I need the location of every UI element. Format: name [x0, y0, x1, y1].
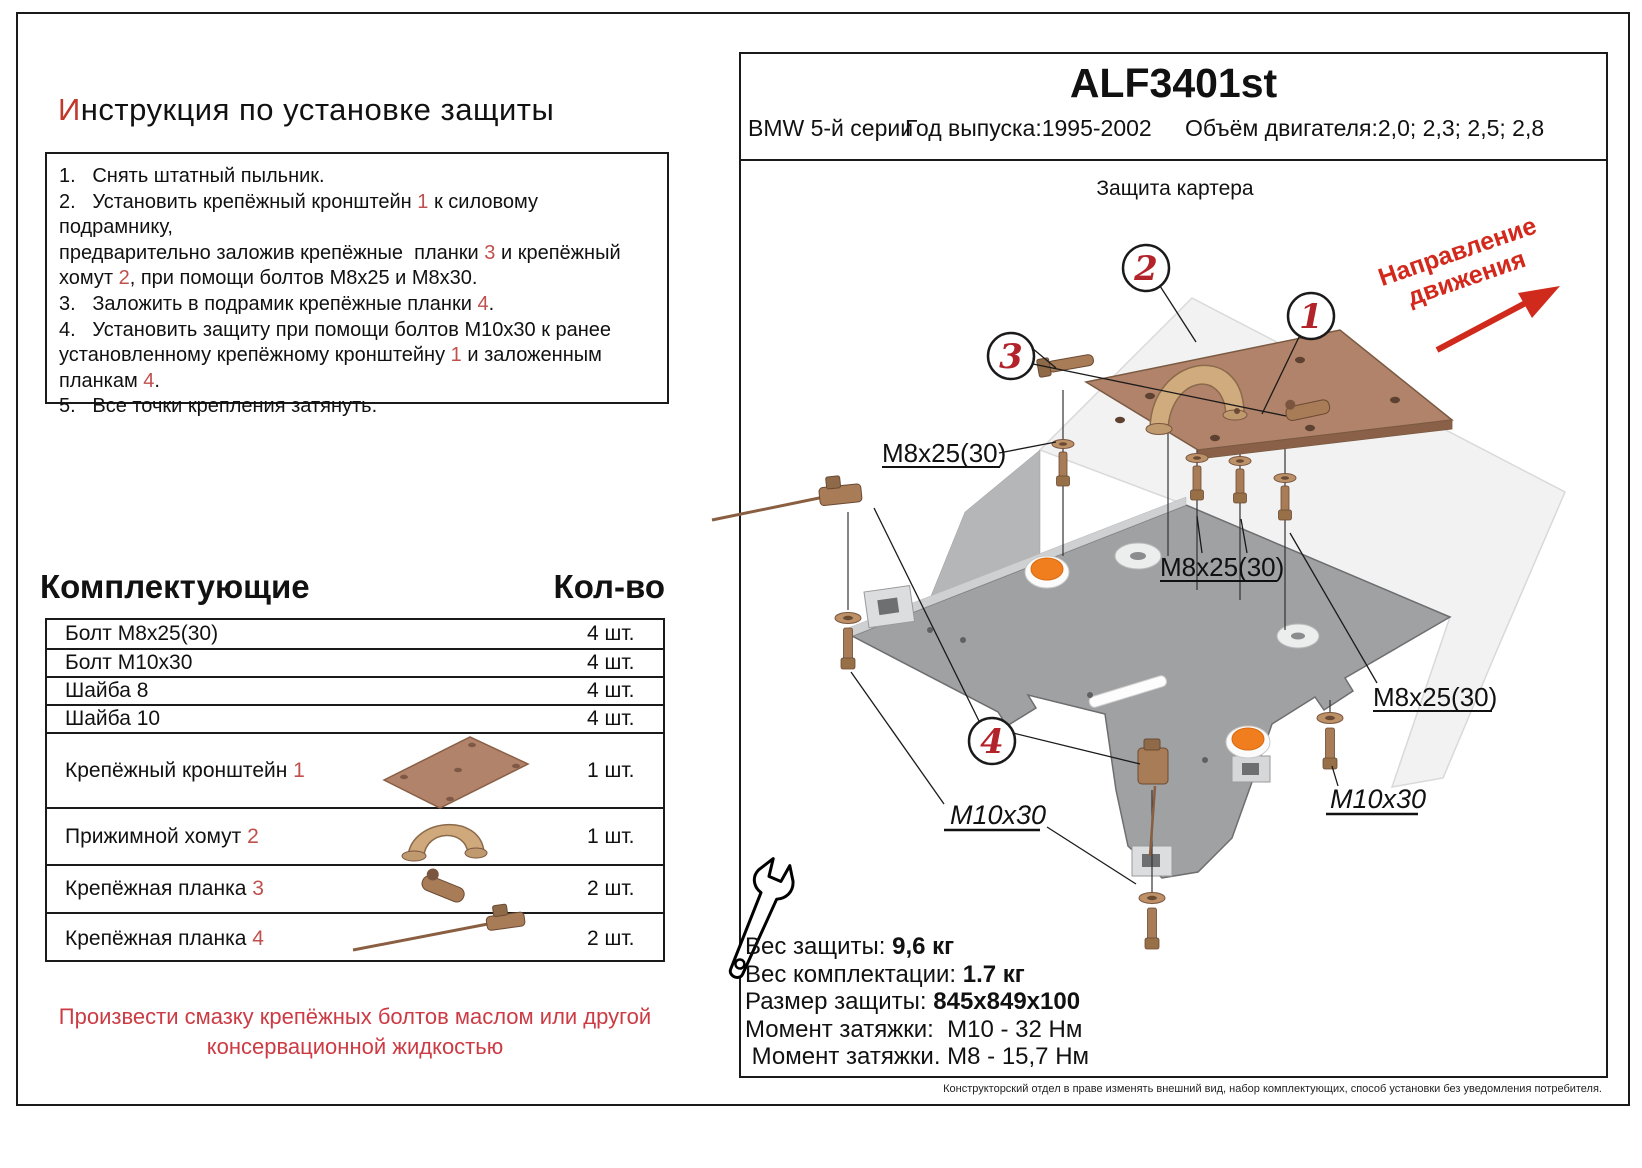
- right-edge-bracket: [1232, 756, 1270, 782]
- bolt-label-m8-3: M8x25(30): [1373, 682, 1497, 712]
- instruction-line: 5. Все точки крепления затянуть.: [59, 394, 655, 420]
- instruction-line: 3. Заложить в подрамик крепёжные планки …: [59, 292, 655, 318]
- bolt-label-m10-right: M10x30: [1326, 784, 1426, 814]
- callout-3: 3: [988, 333, 1034, 379]
- component-name: Прижимной хомут 2: [47, 825, 587, 849]
- spec-info-line: Вес защиты: 9,6 кг: [745, 933, 1089, 961]
- components-table: Болт М8х25(30)4 шт.Болт М10х304 шт.Шайба…: [45, 618, 665, 962]
- spec-info-line: Вес комплектации: 1.7 кг: [745, 961, 1089, 989]
- svg-text:M10x30: M10x30: [950, 800, 1046, 830]
- svg-text:4: 4: [980, 722, 1004, 762]
- m10-bolt-assembly: [1317, 713, 1343, 770]
- component-row: Прижимной хомут 21 шт.: [47, 807, 663, 864]
- svg-text:1: 1: [1299, 297, 1323, 337]
- disclaimer: Конструкторский отдел в праве изменять в…: [740, 1083, 1602, 1095]
- rubber-damper: [1226, 726, 1270, 758]
- component-row: Болт М8х25(30)4 шт.: [47, 620, 663, 648]
- m10-bolt-assembly: [835, 613, 861, 670]
- callout-2: 2: [1123, 245, 1169, 291]
- component-qty: 4 шт.: [587, 679, 663, 703]
- svg-text:M10x30: M10x30: [1330, 784, 1426, 814]
- instruction-line: 4. Установить защиту при помощи болтов М…: [59, 318, 655, 344]
- component-name: Шайба 10: [47, 707, 587, 731]
- part-code: ALF3401st: [739, 60, 1608, 107]
- spec-info-line: Момент затяжки: М10 - 32 Нм: [745, 1016, 1089, 1044]
- component-name: Крепёжная планка 4: [47, 927, 587, 951]
- installation-steps-box: 1. Снять штатный пыльник.2. Установить к…: [45, 152, 669, 404]
- instruction-line: установленному крепёжному кронштейну 1 и…: [59, 343, 655, 369]
- svg-text:М8х25(30): М8х25(30): [882, 438, 1006, 468]
- screw-dot: [927, 627, 933, 633]
- component-qty: 1 шт.: [587, 759, 663, 783]
- component-name: Шайба 8: [47, 679, 587, 703]
- component-name: Болт М10х30: [47, 651, 587, 675]
- spec-info-line: Момент затяжки. М8 - 15,7 Нм: [745, 1043, 1089, 1071]
- screw-dot: [960, 637, 966, 643]
- instruction-line: планкам 4.: [59, 369, 655, 395]
- component-qty: 2 шт.: [587, 927, 663, 951]
- lubrication-note-line1: Произвести смазку крепёжных болтов масло…: [45, 1002, 665, 1032]
- component-qty: 4 шт.: [587, 622, 663, 646]
- m10-bolt-assembly: [1139, 893, 1165, 950]
- component-qty: 4 шт.: [587, 651, 663, 675]
- lubrication-note: Произвести смазку крепёжных болтов масло…: [45, 1002, 665, 1062]
- engine-volumes: Объём двигателя:2,0; 2,3; 2,5; 2,8: [1185, 115, 1544, 142]
- bolt-label-m8-2: М8х25(30): [1160, 552, 1284, 582]
- rubber-damper: [1025, 556, 1069, 588]
- fixing-strip-4-left: [712, 474, 862, 520]
- screw-dot: [1202, 757, 1208, 763]
- page-title-rest: нструкция по установке защиты: [81, 92, 554, 127]
- page-title: Инструкция по установке защиты: [58, 92, 554, 128]
- instruction-line: хомут 2, при помощи болтов М8х25 и М8х30…: [59, 266, 655, 292]
- svg-text:2: 2: [1133, 249, 1158, 289]
- bolt-label-m8-1: М8х25(30): [882, 438, 1006, 468]
- component-row: Шайба 104 шт.: [47, 704, 663, 732]
- fixing-strip-3-top: [1036, 350, 1094, 377]
- component-name: Крепёжная планка 3: [47, 877, 587, 901]
- recessed-hole: [1115, 543, 1161, 569]
- svg-text:3: 3: [999, 337, 1023, 377]
- component-row: Крепёжная планка 42 шт.: [47, 912, 663, 964]
- component-qty: 1 шт.: [587, 825, 663, 849]
- component-name: Болт М8х25(30): [47, 622, 587, 646]
- recessed-hole: [1277, 624, 1319, 648]
- car-model: BMW 5-й серии: [748, 115, 913, 142]
- component-qty: 4 шт.: [587, 707, 663, 731]
- instruction-line: 1. Снять штатный пыльник.: [59, 164, 655, 190]
- lubrication-note-line2: консервационной жидкостью: [45, 1032, 665, 1062]
- spec-info-line: Размер защиты: 845х849х100: [745, 988, 1089, 1016]
- component-row: Болт М10х304 шт.: [47, 648, 663, 676]
- svg-text:M8x25(30): M8x25(30): [1373, 682, 1497, 712]
- callout-4: 4: [969, 718, 1015, 764]
- callout-1: 1: [1288, 293, 1334, 339]
- bolt-label-m10-left: M10x30: [944, 800, 1046, 830]
- component-row: Крепёжный кронштейн 11 шт.: [47, 732, 663, 807]
- components-header: Комплектующие: [40, 568, 310, 606]
- left-corner-bracket: [864, 586, 915, 628]
- quantity-header: Кол-во: [520, 568, 665, 606]
- production-years: Год выпуска:1995-2002: [905, 115, 1152, 142]
- m8-bolt-assembly: [1052, 440, 1074, 487]
- component-name: Крепёжный кронштейн 1: [47, 759, 587, 783]
- svg-text:М8х25(30): М8х25(30): [1160, 552, 1284, 582]
- page-title-first-letter: И: [58, 92, 81, 127]
- spec-info-block: Вес защиты: 9,6 кгВес комплектации: 1.7 …: [745, 933, 1089, 1071]
- instruction-line: 2. Установить крепёжный кронштейн 1 к си…: [59, 190, 655, 241]
- instruction-line: предварительно заложив крепёжные планки …: [59, 241, 655, 267]
- component-qty: 2 шт.: [587, 877, 663, 901]
- screw-dot: [1087, 692, 1093, 698]
- component-row: Крепёжная планка 32 шт.: [47, 864, 663, 912]
- component-row: Шайба 84 шт.: [47, 676, 663, 704]
